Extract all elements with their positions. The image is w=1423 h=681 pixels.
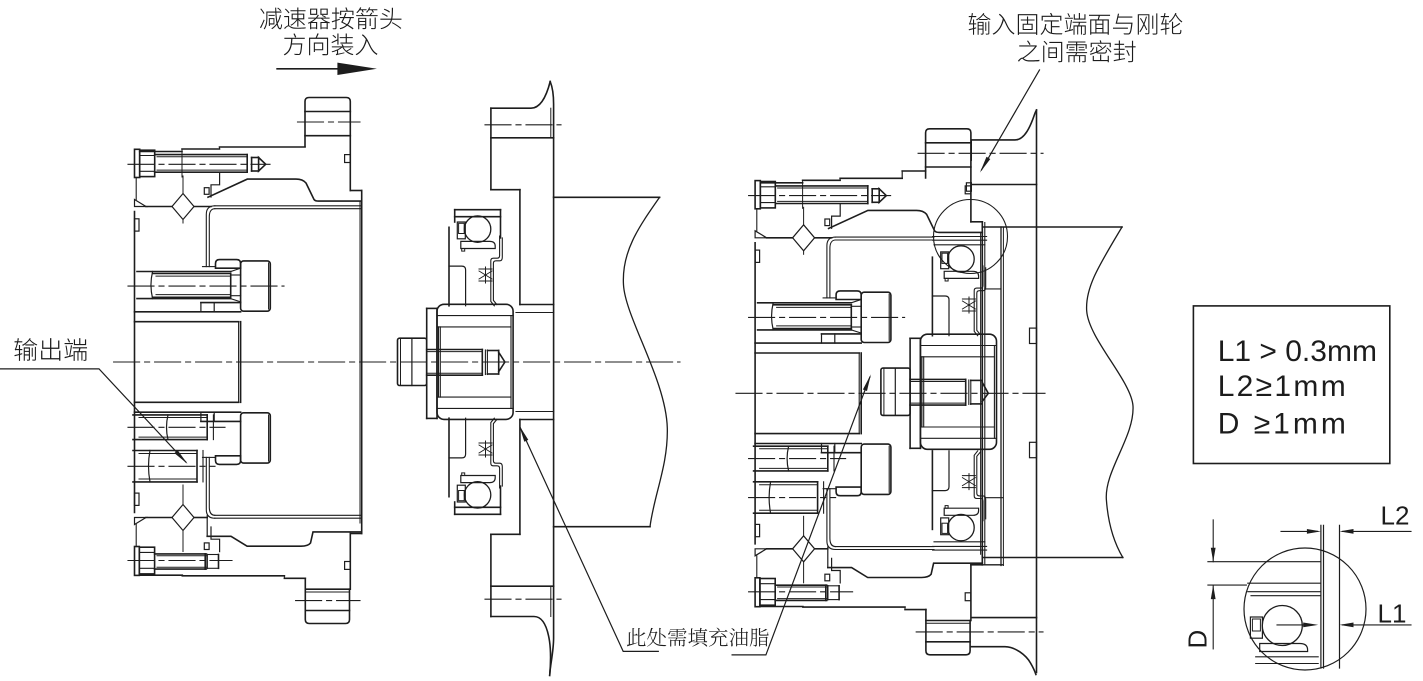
svg-text:L1 > 0.3mm: L1 > 0.3mm xyxy=(1218,335,1377,368)
svg-text:D ≥1mm: D ≥1mm xyxy=(1218,408,1349,441)
svg-text:L1: L1 xyxy=(1378,599,1407,629)
svg-text:D: D xyxy=(1183,630,1213,649)
svg-text:L2≥1mm: L2≥1mm xyxy=(1218,370,1348,403)
svg-text:L2: L2 xyxy=(1381,501,1410,531)
